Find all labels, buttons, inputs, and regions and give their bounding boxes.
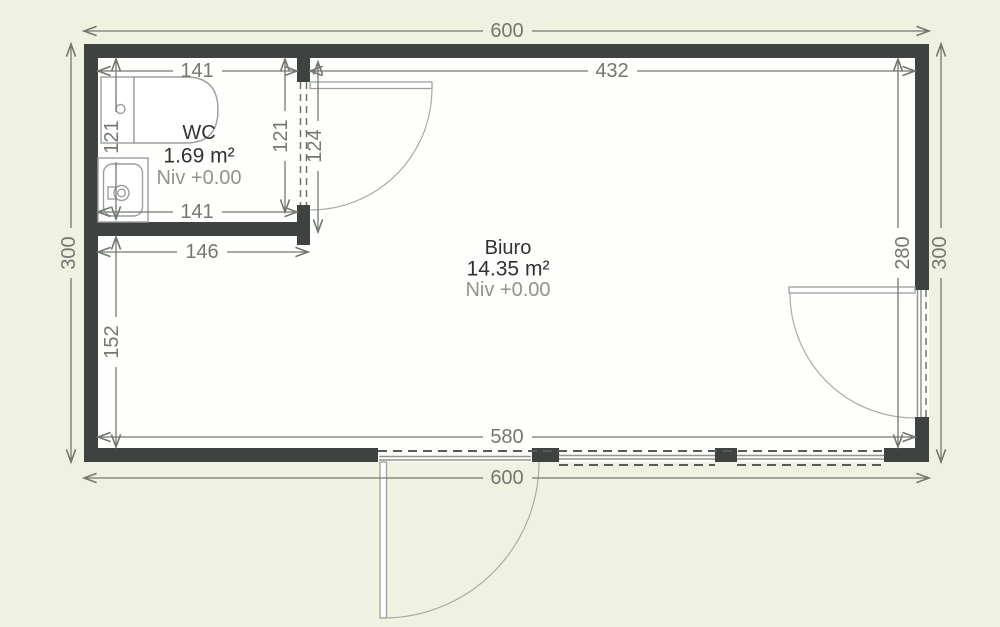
wall-top: [84, 44, 929, 58]
dim-value: 141: [180, 201, 213, 223]
wc-door-leaf: [310, 82, 432, 89]
dim-value: 141: [180, 60, 213, 82]
dim-value: 152: [101, 325, 123, 358]
room-wc-level: Niv +0.00: [156, 167, 241, 189]
floor-plan-drawing: 600 432 141 141 121 121: [0, 0, 1000, 627]
right-door-leaf: [789, 287, 915, 293]
floor-plan-canvas: 600 432 141 141 121 121: [0, 0, 1000, 627]
dim-value: 432: [595, 60, 628, 82]
room-wc-area: 1.69 m²: [163, 145, 234, 168]
dim-value: 280: [892, 236, 914, 269]
dim-value: 121: [270, 119, 292, 152]
room-biuro-level: Niv +0.00: [465, 279, 550, 301]
wall-left: [84, 44, 98, 462]
dim-value: 124: [304, 129, 326, 162]
dim-value: 300: [58, 236, 80, 269]
dim-value: 600: [490, 20, 523, 42]
entrance-door-leaf: [380, 462, 387, 618]
dim-value: 580: [490, 426, 523, 448]
dim-value: 600: [490, 467, 523, 489]
dim-value: 121: [101, 120, 123, 153]
dim-value: 146: [185, 241, 218, 263]
wall-bottom-right: [884, 448, 929, 462]
room-biuro-name: Biuro: [485, 237, 532, 259]
wall-right-upper: [915, 44, 929, 290]
wall-wc-east-upper: [297, 58, 310, 82]
wall-bottom-left: [84, 448, 378, 462]
room-wc-name: WC: [182, 122, 215, 144]
room-biuro-area: 14.35 m²: [467, 258, 550, 281]
dim-value: 300: [929, 236, 951, 269]
wall-wc-south: [84, 222, 310, 236]
